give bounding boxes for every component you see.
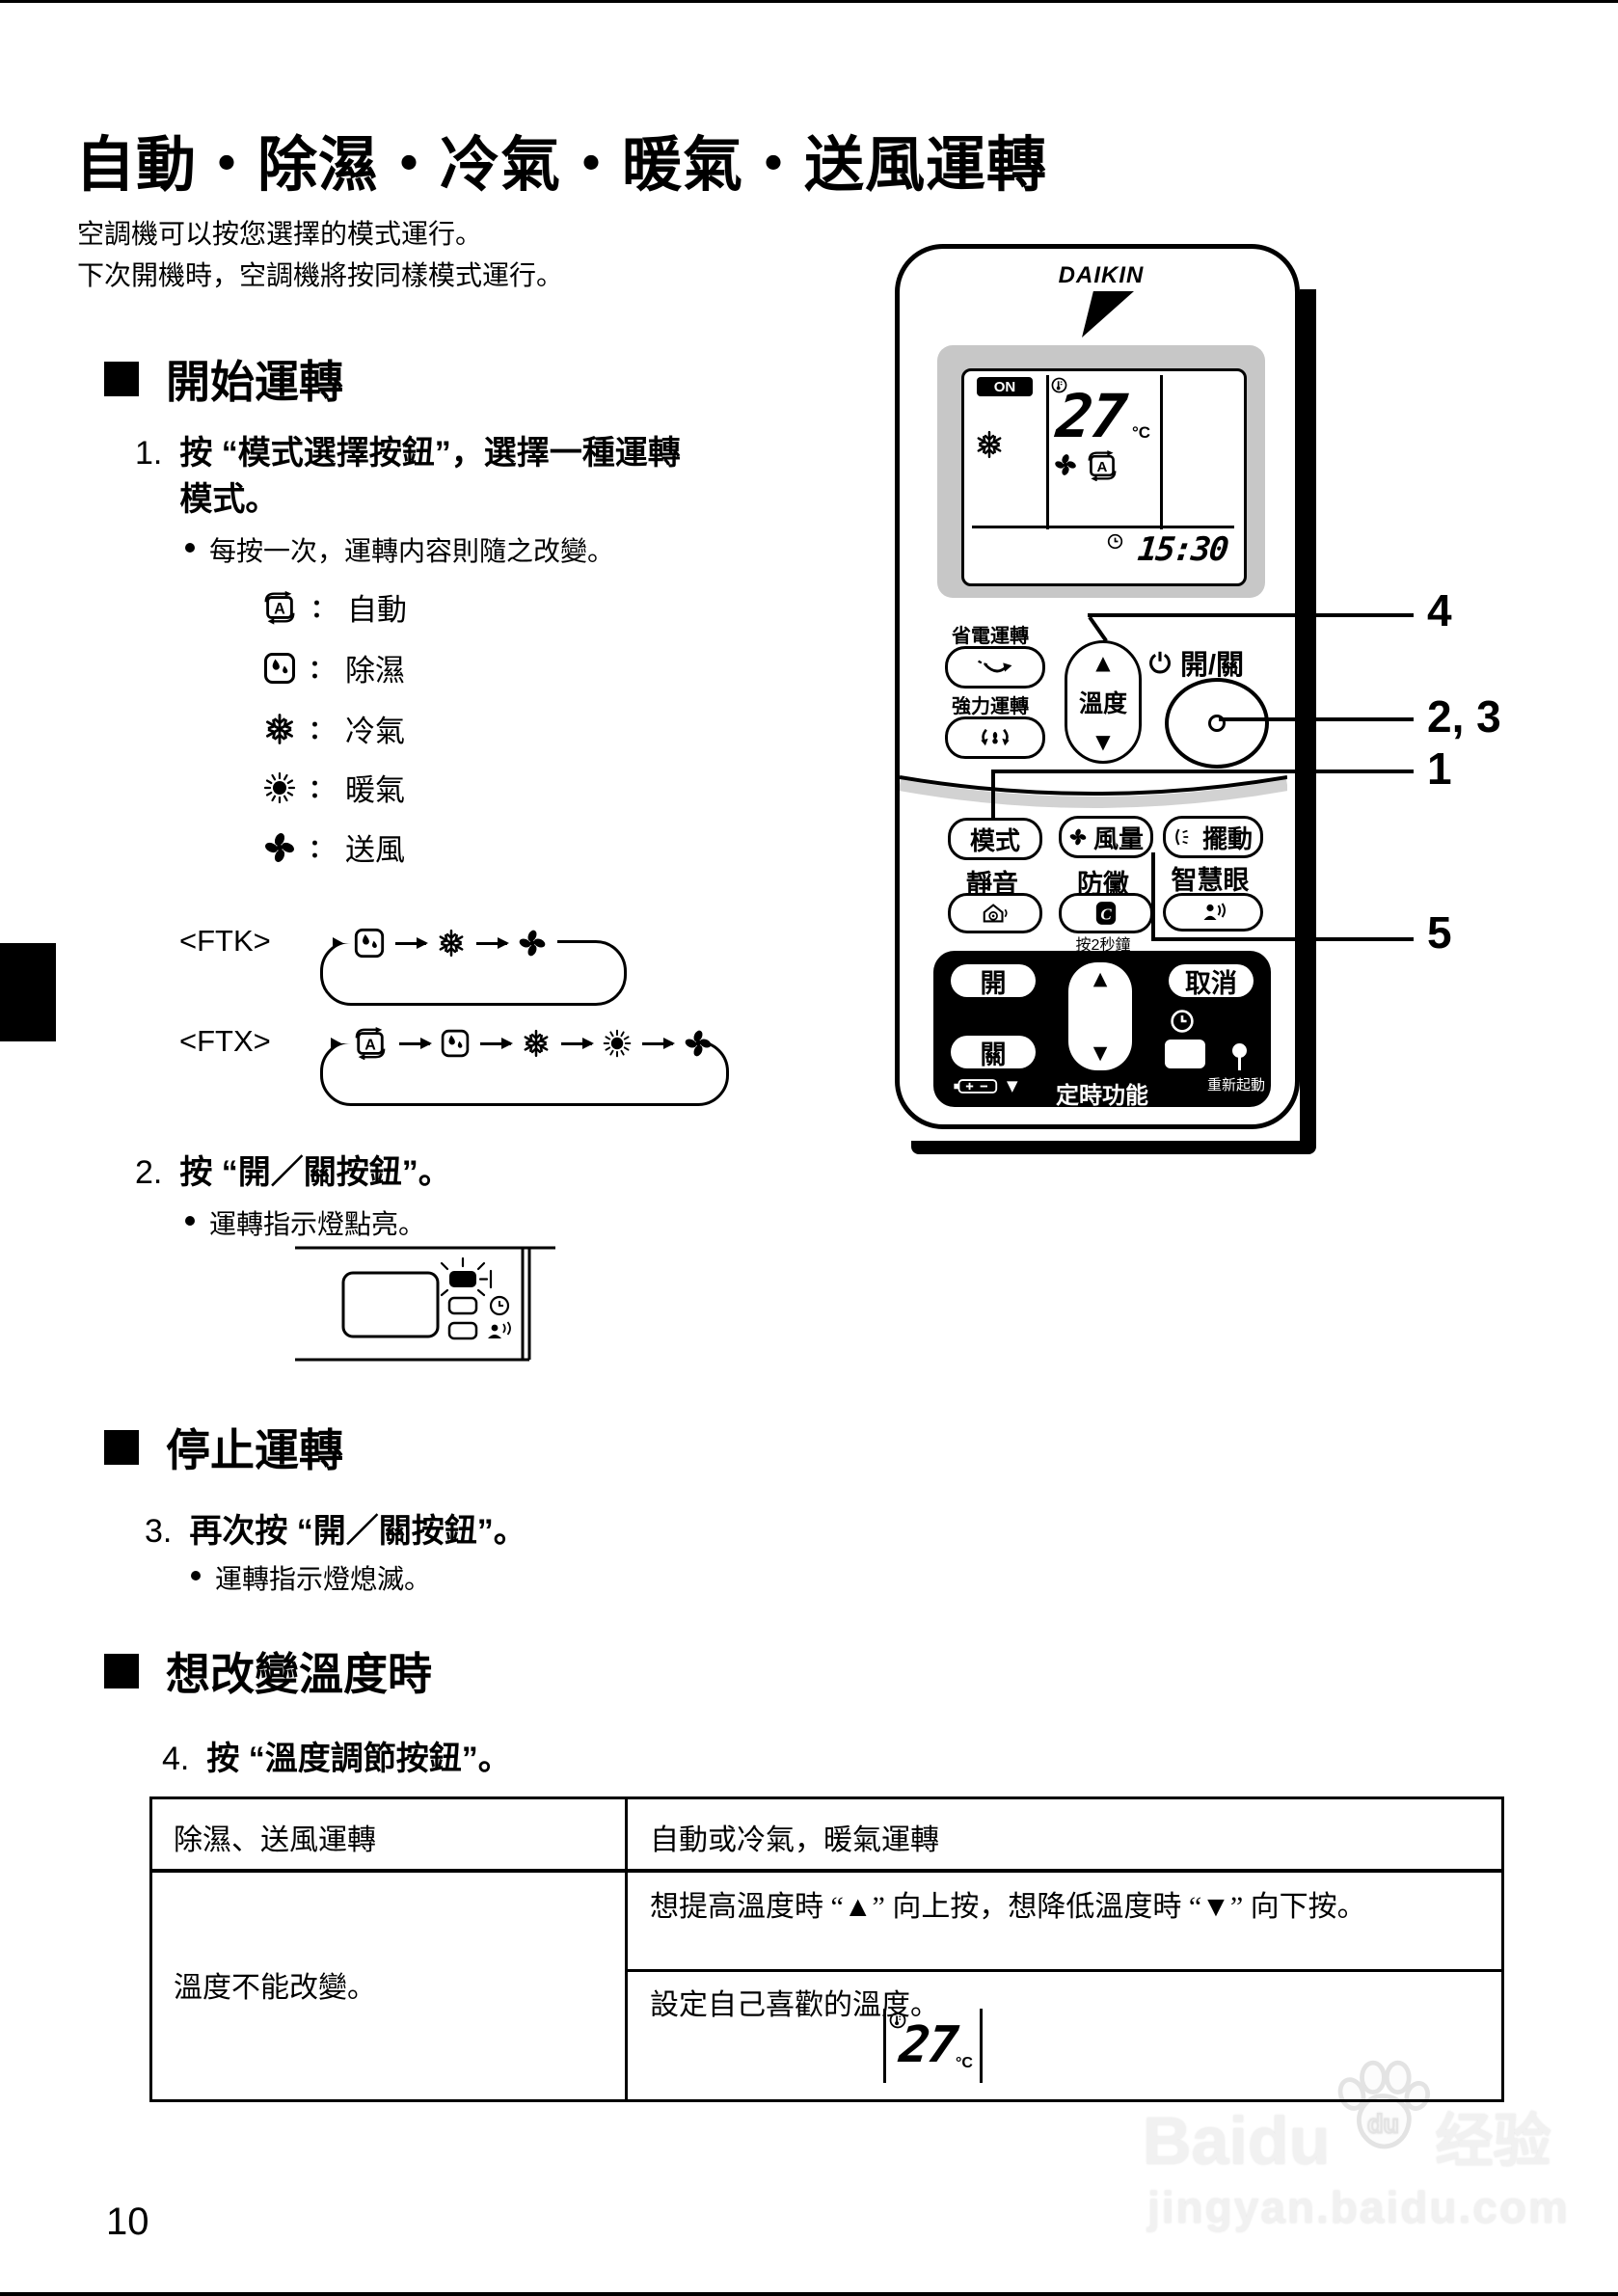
timer-rocker: ▲ ▼ [1068,962,1132,1070]
step-3-bullet: 運轉指示燈熄滅。 [191,1558,431,1597]
section-square-icon [104,1430,139,1465]
swing-button: 擺動 [1163,816,1263,858]
restart-label: 重新起動 [1201,1074,1271,1094]
temperature-table: 除濕、送風運轉 自動或冷氣，暖氣運轉 溫度不能改變。 想提高溫度時 “▲” 向上… [149,1796,1504,2102]
timer-on-button: 開 [951,964,1036,997]
ftk-label: <FTK> [179,924,271,959]
page-top-border [0,0,1618,3]
fan-mode-icon [683,1028,714,1059]
callout-line-1 [991,770,1414,773]
timer-up-button: ▲ [1093,970,1108,988]
step-3: 3. 再次按 “開／關按鈕”。 [145,1508,526,1554]
step-1: 1. 按 “模式選擇按鈕”，選擇一種運轉 模式。 [135,430,681,523]
intro-line-1: 空調機可以按您選擇的模式運行。 [77,214,563,256]
callout-2-3: 2, 3 [1427,690,1501,743]
dehumidify-mode-icon [262,651,297,686]
step-2-number: 2. [135,1149,162,1196]
house-fan-icon [981,902,1010,925]
auto-mode-icon [1084,450,1120,481]
person-waves-icon [1200,902,1226,923]
timer-panel: 開 關 ▼ ▲ ▼ 定時功能 取消 重新起動 [933,951,1271,1107]
callout-line-2-3 [1219,717,1414,721]
section-heading-temp: 想改變溫度時 [104,1639,432,1703]
section-heading-start: 開始運轉 [104,347,343,411]
chapter-tab [0,943,56,1041]
fan-speed-button: 風量 [1059,816,1153,858]
timer-down-button: ▼ [1093,1044,1108,1063]
clock-icon [1170,1009,1195,1034]
fan-mode-icon [1053,452,1078,477]
temp-down-button: ▼ [1095,732,1110,751]
restart-button [1232,1043,1247,1058]
arrow-right-icon [561,1042,592,1045]
page-bottom-border [0,2292,1618,2296]
bullet-dot-icon [191,1571,201,1580]
swing-icon [1173,827,1197,847]
step-2: 2. 按 “開／關按鈕”。 [135,1149,451,1196]
lcd-temp-value: 27 [1054,387,1128,446]
lcd-temp-unit: °C [956,2055,973,2072]
lcd-temp-display: 27 °C [883,2009,983,2083]
cool-mode-icon [262,712,297,746]
ftx-cycle-diagram [320,1040,729,1106]
auto-mode-icon [351,1027,390,1060]
temp-up-button: ▲ [1095,653,1110,672]
arrow-right-icon [480,1042,511,1045]
smart-eye-button [1163,893,1263,932]
section-square-icon [104,362,139,396]
callout-line-5 [1151,937,1414,941]
section-heading-stop-label: 停止運轉 [166,1416,343,1479]
powerful-button [945,716,1045,759]
timer-function-label: 定時功能 [1049,1076,1155,1110]
power-icon [1147,650,1173,675]
lcd-time: 15:30 [1136,533,1228,566]
power-label: 開/關 [1180,642,1244,683]
cool-mode-icon [436,928,467,959]
lcd-temp-unit: °C [1132,423,1150,443]
auto-mode-icon [260,590,299,625]
baidu-watermark: Baidu 经验 [1143,2107,1551,2174]
section-heading-start-label: 開始運轉 [166,347,343,411]
lcd-temp-value: 27 [897,2020,958,2070]
cycle-entry-arrow-icon [331,1038,341,1049]
page-number: 10 [106,2201,149,2244]
remote-bottom-shadow [911,1141,1316,1154]
powersave-icon [974,657,1016,678]
callout-1: 1 [1427,743,1452,795]
timer-set-button [1165,1040,1205,1068]
watermark-url: jingyan.baidu.com [1147,2181,1570,2233]
step-3-text: 再次按 “開／關按鈕”。 [189,1508,526,1554]
heat-mode-icon [602,1028,633,1059]
battery-row: ▼ [953,1078,1018,1094]
fan-icon [1068,827,1088,847]
power-button [1165,678,1269,769]
powersave-label: 省電運轉 [935,620,1045,648]
operation-lamp-diagram [295,1242,557,1365]
page-title: 自動・除濕・冷氣・暖氣・送風運轉 [75,116,1047,203]
dehumidify-mode-icon [353,927,386,959]
mode-label-cool: 冷氣 [345,707,405,750]
smart-eye-label: 智慧眼 [1163,859,1257,897]
step-1-bullet: 每按一次，運轉内容則隨之改變。 [185,530,614,569]
table-cell-left: 溫度不能改變。 [174,1963,376,2006]
section-heading-temp-label: 想改變溫度時 [166,1639,432,1703]
arrow-right-icon [642,1042,673,1045]
lcd-on-badge: ON [977,377,1033,396]
step-4: 4. 按 “溫度調節按鈕”。 [162,1736,511,1782]
quiet-button [948,893,1042,933]
remote-side-shadow [1300,289,1316,1154]
bullet-dot-icon [185,1216,195,1226]
fan-mode-icon [262,830,297,865]
battery-icon [953,1078,999,1094]
intro-line-2: 下次開機時，空調機將按同樣模式運行。 [77,256,563,297]
mode-label-auto: 自動 [347,585,407,629]
remote-lcd: ON 27 °C 15:30 [961,368,1247,586]
ftk-cycle-diagram [320,940,627,1006]
case-seam [900,770,1287,812]
mode-item-heat: ： 暖氣 [262,766,405,809]
step-1-text: 按 “模式選擇按鈕”，選擇一種運轉 模式。 [179,430,680,523]
mode-button: 模式 [948,818,1042,860]
cycle-entry-arrow-icon [333,937,343,949]
cool-mode-icon [974,429,1005,460]
arrow-right-icon [399,1042,430,1045]
c-badge-icon [1095,901,1117,926]
watermark-suffix: 经验 [1435,2113,1551,2171]
mode-item-auto: ： 自動 [260,585,407,629]
mold-proof-button [1059,893,1153,933]
cancel-button: 取消 [1169,964,1254,997]
timer-off-button: 關 [951,1036,1036,1068]
cool-mode-icon [521,1028,552,1059]
step-1-number: 1. [135,430,162,523]
battery-down-icon: ▼ [1007,1079,1018,1094]
powerful-label: 強力運轉 [935,690,1045,718]
dehumidify-mode-icon [440,1028,471,1059]
mode-item-cool: ： 冷氣 [262,707,405,750]
mode-label-fan: 送風 [345,825,405,869]
callout-line-4 [1088,613,1414,617]
step-4-number: 4. [162,1736,189,1782]
callout-line-5-v [1151,852,1155,941]
temperature-rocker: ▲ 溫度 ▼ [1065,640,1142,764]
mode-label-dry: 除濕 [345,646,405,689]
step-4-text: 按 “溫度調節按鈕”。 [206,1736,510,1782]
section-square-icon [104,1654,139,1688]
table-cell-row2: 想提高溫度時 “▲” 向上按，想降低溫度時 “▼” 向下按。 [650,1886,1484,1929]
table-header-left: 除濕、送風運轉 [174,1816,376,1858]
heat-mode-icon [262,770,297,805]
daikin-logo: DAIKIN [1053,262,1149,289]
watermark-brand: Baidu [1143,2107,1330,2174]
fan-mode-icon [517,928,548,959]
section-heading-stop: 停止運轉 [104,1416,343,1479]
clock-icon [1107,533,1123,550]
callout-5: 5 [1427,906,1452,959]
step-3-number: 3. [145,1508,172,1554]
powersave-button [945,646,1045,689]
intro-text: 空調機可以按您選擇的模式運行。 下次開機時，空調機將按同樣模式運行。 [77,214,563,297]
step-2-bullet: 運轉指示燈點亮。 [185,1203,425,1242]
temp-rocker-label: 溫度 [1079,685,1127,719]
step-2-text: 按 “開／關按鈕”。 [179,1149,450,1196]
callout-line-1-v [991,771,995,820]
ftx-label: <FTX> [179,1024,271,1059]
manual-page: 自動・除濕・冷氣・暖氣・送風運轉 空調機可以按您選擇的模式運行。 下次開機時，空… [0,0,1618,2296]
mode-item-fan: ： 送風 [262,825,405,869]
mode-item-dry: ： 除濕 [262,646,405,689]
mode-label-heat: 暖氣 [345,766,405,809]
power-label-row: 開/關 [1147,642,1244,683]
arrow-right-icon [395,942,426,945]
callout-4: 4 [1427,584,1452,636]
table-header-right: 自動或冷氣，暖氣運轉 [650,1816,939,1858]
bullet-dot-icon [185,543,195,553]
arrow-right-icon [476,942,507,945]
powerful-icon [974,727,1016,748]
